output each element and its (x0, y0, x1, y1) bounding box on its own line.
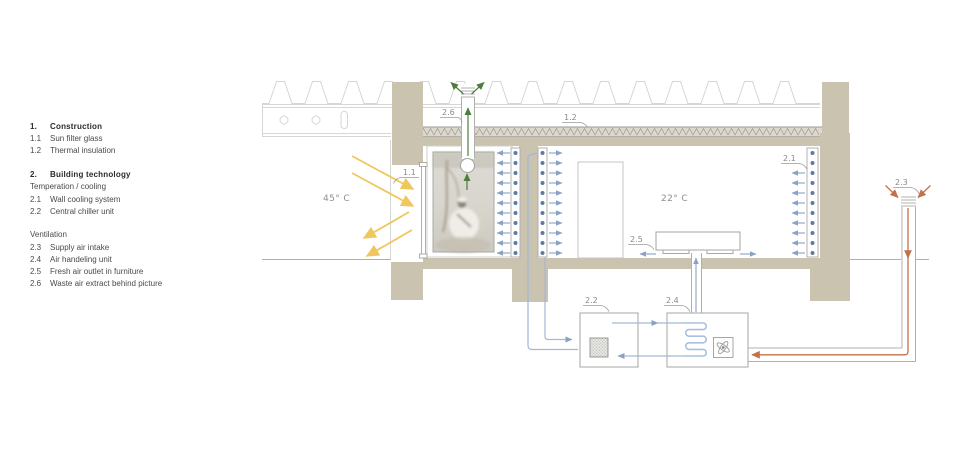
cooling-pipe-dot (514, 251, 518, 255)
legend-label: Supply air intake (50, 242, 109, 254)
legend-row: 2.5Fresh air outlet in furniture (30, 266, 265, 278)
cooling-pipe-dot (541, 181, 545, 185)
legend-label: Building technology (50, 169, 131, 181)
right-parapet (822, 82, 849, 133)
facade-column (392, 82, 423, 165)
cooling-pipe-dot (514, 171, 518, 175)
sun-filter-glass (420, 163, 428, 259)
left-facade-band (262, 104, 391, 260)
cooling-pipe-dot (541, 171, 545, 175)
legend-label: Temperation / cooling (30, 181, 106, 193)
right-wall (820, 133, 850, 262)
sawtooth-roof-profile (262, 82, 820, 104)
legend-row: 2.4Air handeling unit (30, 254, 265, 266)
door-opening (578, 162, 623, 258)
inside-temperature: 22° C (661, 194, 688, 204)
legend-num: 1.1 (30, 133, 50, 145)
legend-label: Thermal insulation (50, 145, 115, 157)
cooling-pipe-dot (514, 211, 518, 215)
callout-fresh-air-outlet: 2.5 (630, 235, 643, 244)
intake-grille (901, 197, 916, 206)
legend-label: Sun filter glass (50, 133, 102, 145)
cooling-pipe-dot (541, 211, 545, 215)
glass-foundation (391, 262, 423, 300)
cooling-pipe-dot (541, 151, 545, 155)
chiller-core (590, 338, 608, 357)
facade-porthole (280, 116, 288, 124)
callout-waste-air-extract: 2.6 (442, 108, 455, 117)
cooling-pipe-dot (811, 161, 815, 165)
glass-bottom-cap (420, 254, 428, 258)
legend-num: 1. (30, 121, 50, 133)
callout-wall-cooling: 2.1 (783, 154, 796, 163)
legend-row: 2.3Supply air intake (30, 242, 265, 254)
chiller-box (580, 313, 638, 367)
sun-ray-in (352, 173, 413, 206)
extract-fan-circle (461, 159, 475, 173)
callout-sun-filter-glass: 1.1 (403, 168, 416, 177)
legend-row: Temperation / cooling (30, 181, 265, 193)
cooling-pipe-dot (811, 251, 815, 255)
cooling-pipe-dot (541, 161, 545, 165)
thermal-insulation-band (420, 127, 822, 137)
legend: 1.Construction 1.1Sun filter glass 1.2Th… (30, 121, 265, 290)
cooling-pipe-dot (514, 231, 518, 235)
legend-label: Waste air extract behind picture (50, 278, 162, 290)
picture-ground (435, 237, 491, 253)
legend-label: Air handeling unit (50, 254, 112, 266)
ahu-box (667, 313, 748, 367)
legend-label: Fresh air outlet in furniture (50, 266, 143, 278)
legend-num: 2.4 (30, 254, 50, 266)
outside-temperature: 45° C (323, 194, 350, 204)
legend-num: 2.6 (30, 278, 50, 290)
sun-ray-reflected (364, 212, 409, 238)
cooling-pipe-dot (811, 201, 815, 205)
furniture-plinth (663, 250, 689, 254)
fresh-air-furniture (640, 232, 756, 254)
cooling-pipe-dot (541, 231, 545, 235)
central-chiller-unit (580, 313, 638, 367)
cooling-pipe-dot (811, 211, 815, 215)
cooling-pipe-dot (541, 221, 545, 225)
cooling-pipe-dot (514, 151, 518, 155)
legend-row: 1.1Sun filter glass (30, 133, 265, 145)
fan-hub (722, 346, 724, 348)
glass-top-cap (420, 163, 428, 167)
floor-slab-left (423, 258, 692, 269)
legend-row: 2.Building technology (30, 169, 265, 181)
legend-num: 2.2 (30, 206, 50, 218)
legend-label: Central chiller unit (50, 206, 114, 218)
cooling-pipe-dot (811, 151, 815, 155)
legend-row: 2.1Wall cooling system (30, 194, 265, 206)
cooling-pipe-dot (514, 161, 518, 165)
callout-thermal-insulation: 1.2 (564, 113, 577, 122)
cooling-pipe-dot (514, 191, 518, 195)
legend-row: 1.2Thermal insulation (30, 145, 265, 157)
building-section-page: 1.1 1.2 2.1 2.2 2.3 2.4 2.5 2.6 45° C 22… (0, 0, 960, 450)
cooling-pipe-dot (811, 171, 815, 175)
callout-chiller: 2.2 (585, 296, 598, 305)
legend-num: 2.1 (30, 194, 50, 206)
legend-num: 2.5 (30, 266, 50, 278)
cooling-pipe-dot (811, 241, 815, 245)
legend-label: Ventilation (30, 229, 67, 241)
legend-row: 2.2Central chiller unit (30, 206, 265, 218)
facade-porthole (312, 116, 320, 124)
cooling-pipe-dot (541, 201, 545, 205)
sun-ray-reflected (367, 230, 412, 256)
legend-row: 1.Construction (30, 121, 265, 133)
callout-supply-intake: 2.3 (895, 178, 908, 187)
cooling-pipe-dot (514, 221, 518, 225)
cooling-pipe-dot (811, 191, 815, 195)
furniture-body (656, 232, 740, 250)
cooling-pipe-dot (514, 181, 518, 185)
cooling-pipe-dot (811, 221, 815, 225)
air-handling-unit (667, 313, 748, 367)
legend-label: Wall cooling system (50, 194, 120, 206)
legend-row: 2.6Waste air extract behind picture (30, 278, 265, 290)
wall-cooling-return-pipe (545, 257, 572, 340)
cooling-pipe-dot (541, 251, 545, 255)
cooling-pipe-dot (514, 201, 518, 205)
floor-slab-right (702, 258, 851, 269)
intake-arrow-right (918, 186, 931, 198)
picture-turban (457, 197, 466, 202)
facade-slot (341, 112, 348, 129)
ceiling-slab (420, 137, 831, 147)
callout-ahu: 2.4 (666, 296, 679, 305)
legend-num: 2. (30, 169, 50, 181)
picture-robe (449, 208, 479, 240)
sawtooth-roof (262, 82, 820, 108)
legend-num: 1.2 (30, 145, 50, 157)
legend-row: Ventilation (30, 229, 265, 241)
legend-num: 2.3 (30, 242, 50, 254)
cooling-pipe-dot (541, 191, 545, 195)
furniture-plinth (707, 250, 733, 254)
cooling-pipe-dot (541, 241, 545, 245)
cooling-pipe-dot (514, 241, 518, 245)
cooling-pipe-dot (811, 181, 815, 185)
cooling-pipe-dot (811, 231, 815, 235)
legend-label: Construction (50, 121, 102, 133)
